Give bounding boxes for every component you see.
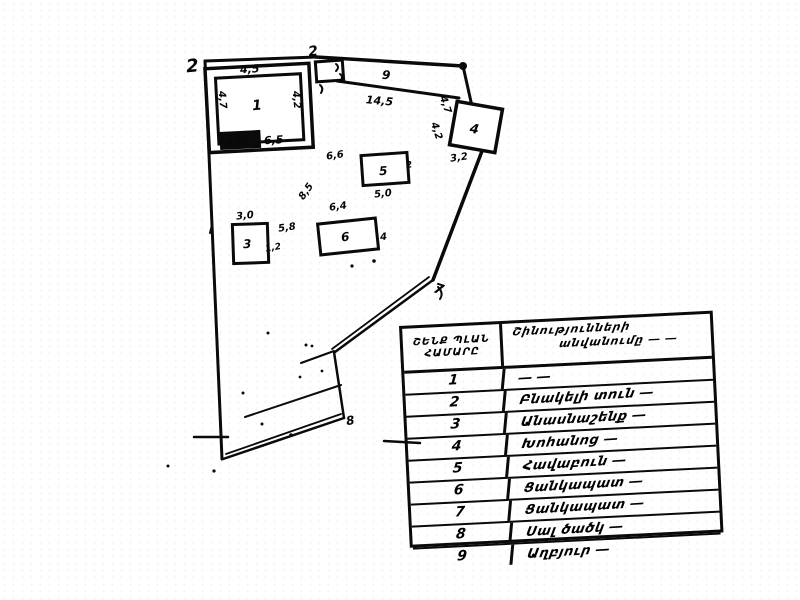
building-4-dim-bottom: 3,2 bbox=[450, 151, 469, 164]
strip-dim-length: 14,5 bbox=[365, 93, 394, 108]
building-2-outline bbox=[315, 60, 343, 82]
legend-row-7-number: 7 bbox=[410, 501, 512, 526]
building-3-dim-right: 1,2 bbox=[265, 242, 282, 255]
boundary-corner-dot bbox=[459, 62, 467, 70]
legend-header-number-column: ՇԵՆՔ ՊԼԱՆ ՀԱՄԱՐԸ bbox=[402, 324, 504, 371]
building-1-dim-right: 4,2 bbox=[290, 90, 303, 110]
strip-dim-width: 9 bbox=[382, 68, 391, 83]
building-1-label: 1 bbox=[251, 97, 262, 114]
building-5-dim-right: 2 bbox=[405, 160, 413, 171]
building-4-dim-left: 4,2 bbox=[428, 120, 444, 141]
building-1-annex-marks: × × bbox=[226, 137, 242, 147]
building-3-dim-top: 3,0 bbox=[236, 210, 255, 223]
legend-row-8-number: 8 bbox=[411, 523, 513, 548]
building-2-label: 2 bbox=[307, 43, 319, 60]
vertex-label-7: 7 bbox=[431, 280, 445, 298]
building-1-dim-bottom: 6,5 bbox=[264, 133, 285, 147]
dim-6-6: 6,6 bbox=[325, 149, 344, 162]
dim-5-8: 5,8 bbox=[278, 221, 297, 234]
building-6-dim-right: 4 bbox=[379, 232, 388, 244]
building-5-label: 5 bbox=[379, 164, 388, 179]
legend-row-5-number: 5 bbox=[408, 457, 510, 482]
building-1-dim-top: 4,5 bbox=[239, 62, 261, 76]
legend-header-number-line2: ՀԱՄԱՐԸ bbox=[424, 346, 480, 361]
building-3-label: 3 bbox=[243, 237, 252, 251]
legend-row-4-number: 4 bbox=[407, 435, 509, 460]
building-6-dim-top: 6,4 bbox=[329, 200, 348, 213]
building-1-dim-left: 4,7 bbox=[216, 90, 229, 110]
legend-row-2-number: 2 bbox=[405, 391, 507, 416]
vertex-label-2: 2 bbox=[185, 55, 199, 77]
building-5-dim-bottom: 5,0 bbox=[374, 188, 393, 201]
vertex-label-8: 8 bbox=[345, 413, 356, 428]
building-6-label: 6 bbox=[340, 230, 350, 245]
dim-8-5: 8,5 bbox=[297, 181, 316, 202]
legend-table: ՇԵՆՔ ՊԼԱՆ ՀԱՄԱՐԸ Շինությունների անվանում… bbox=[399, 311, 723, 548]
legend-row-1-number: 1 bbox=[404, 369, 506, 394]
scan-specks bbox=[167, 259, 376, 472]
legend-row-3-number: 3 bbox=[406, 413, 508, 438]
legend-row-6-number: 6 bbox=[409, 479, 511, 504]
legend-header-name-column: Շինությունների անվանումը ― ― bbox=[502, 314, 712, 366]
scanned-site-plan: 2 7 8 1 4,5 4,7 4,2 6,5 × × 2 9 14,5 4,7… bbox=[0, 0, 800, 600]
